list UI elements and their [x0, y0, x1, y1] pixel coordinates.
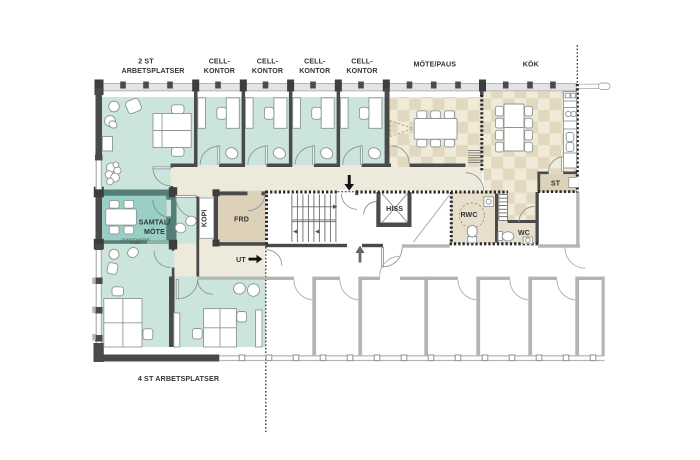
svg-text:MÖTE: MÖTE [144, 227, 165, 236]
svg-text:ST: ST [551, 179, 561, 187]
svg-text:H:1200: H:1200 [130, 241, 141, 245]
svg-text:2 ST: 2 ST [138, 58, 154, 66]
svg-text:CELL-: CELL- [209, 58, 231, 66]
svg-text:CELL-: CELL- [257, 58, 279, 66]
svg-text:SAMTAL/: SAMTAL/ [139, 219, 171, 227]
svg-text:RWC: RWC [460, 211, 477, 219]
svg-text:UT: UT [236, 256, 246, 264]
svg-text:KONTOR: KONTOR [299, 67, 330, 75]
svg-text:KOPI: KOPI [202, 210, 209, 228]
svg-text:MÖTE/PAUS: MÖTE/PAUS [414, 60, 457, 69]
svg-text:CELL-: CELL- [304, 58, 326, 66]
svg-text:KONTOR: KONTOR [204, 67, 235, 75]
svg-text:CELL-: CELL- [351, 58, 373, 66]
svg-text:ARBETSPLATSER: ARBETSPLATSER [121, 67, 184, 75]
svg-text:FRD: FRD [234, 216, 249, 224]
svg-text:WC: WC [518, 229, 530, 237]
svg-text:KÖK: KÖK [523, 60, 540, 69]
svg-text:HISS: HISS [386, 205, 403, 213]
svg-text:KONTOR: KONTOR [346, 67, 377, 75]
svg-text:KONTOR: KONTOR [252, 67, 283, 75]
svg-text:4 ST ARBETSPLATSER: 4 ST ARBETSPLATSER [138, 374, 220, 383]
